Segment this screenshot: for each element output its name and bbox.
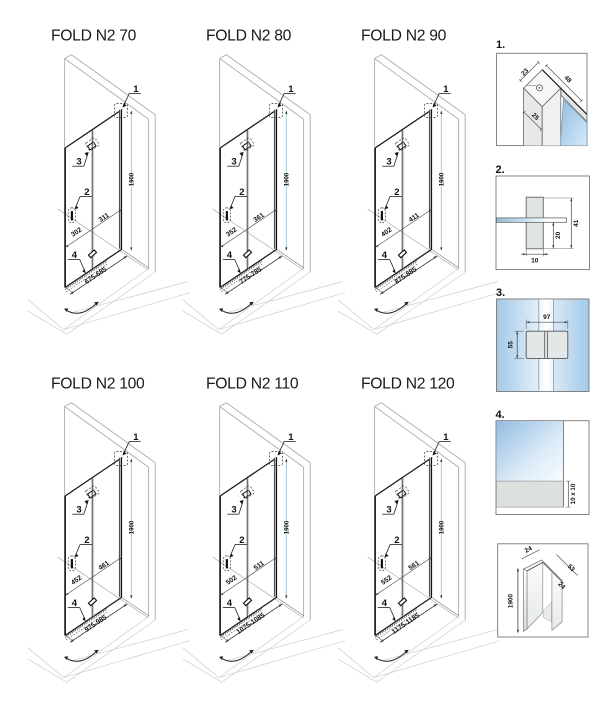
svg-text:1900: 1900 [130,172,136,186]
svg-text:1900: 1900 [285,520,291,534]
svg-text:1.: 1. [496,39,505,51]
svg-text:FOLD N2 80: FOLD N2 80 [206,27,292,44]
svg-text:311: 311 [98,212,111,224]
svg-text:20: 20 [555,231,562,239]
svg-text:10: 10 [531,258,539,265]
svg-text:411: 411 [408,212,421,224]
svg-text:1175-1185: 1175-1185 [391,612,421,636]
svg-text:FOLD N2 110: FOLD N2 110 [206,375,299,392]
svg-text:4.: 4. [496,409,505,421]
svg-text:1900: 1900 [508,593,515,608]
svg-text:41: 41 [573,219,580,227]
svg-text:461: 461 [98,560,111,572]
svg-text:561: 561 [408,560,421,572]
svg-text:1900: 1900 [440,172,446,186]
svg-text:FOLD N2 70: FOLD N2 70 [51,27,137,44]
svg-text:FOLD N2 120: FOLD N2 120 [361,375,455,392]
svg-text:10 x 10: 10 x 10 [570,483,577,504]
svg-text:FOLD N2 90: FOLD N2 90 [361,27,447,44]
svg-text:511: 511 [253,560,266,572]
svg-text:FOLD N2 100: FOLD N2 100 [51,375,145,392]
svg-text:97: 97 [543,314,551,321]
svg-text:55: 55 [507,341,514,349]
svg-text:2.: 2. [496,164,505,176]
svg-text:1900: 1900 [440,520,446,534]
svg-text:1900: 1900 [130,520,136,534]
svg-text:1075-1085: 1075-1085 [236,612,267,636]
svg-text:3.: 3. [496,287,505,299]
svg-text:361: 361 [253,212,266,224]
svg-text:1900: 1900 [285,172,291,186]
